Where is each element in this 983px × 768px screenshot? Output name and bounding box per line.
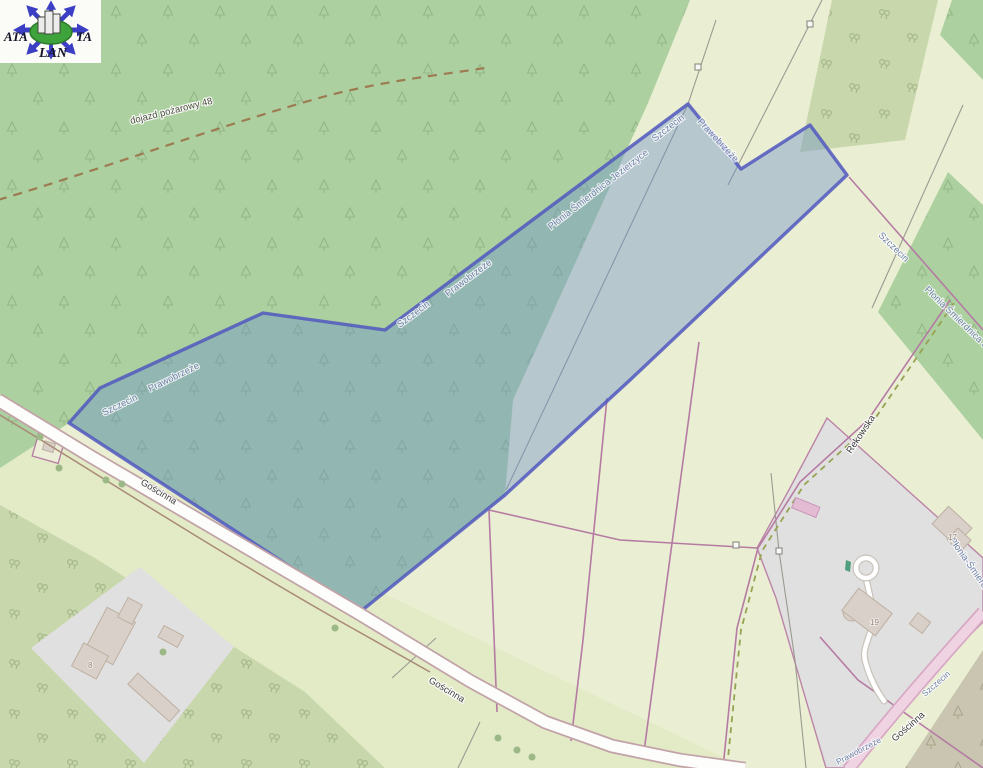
map-canvas[interactable]: dojazd pożarowy 48 Szczecin Prawobrzeże … bbox=[0, 0, 983, 768]
housenumber-8: 8 bbox=[88, 661, 93, 670]
logo-text-right: TA bbox=[76, 29, 92, 44]
logo-text-left: ATA bbox=[3, 29, 28, 44]
logo-text-bottom: LAN bbox=[38, 46, 68, 61]
atalan-logo: ATA TA LAN bbox=[0, 0, 101, 63]
hedge-marker bbox=[845, 560, 851, 572]
housenumber-17: 17 bbox=[948, 533, 957, 542]
map-viewport[interactable]: dojazd pożarowy 48 Szczecin Prawobrzeże … bbox=[0, 0, 983, 768]
housenumber-19: 19 bbox=[870, 618, 879, 627]
